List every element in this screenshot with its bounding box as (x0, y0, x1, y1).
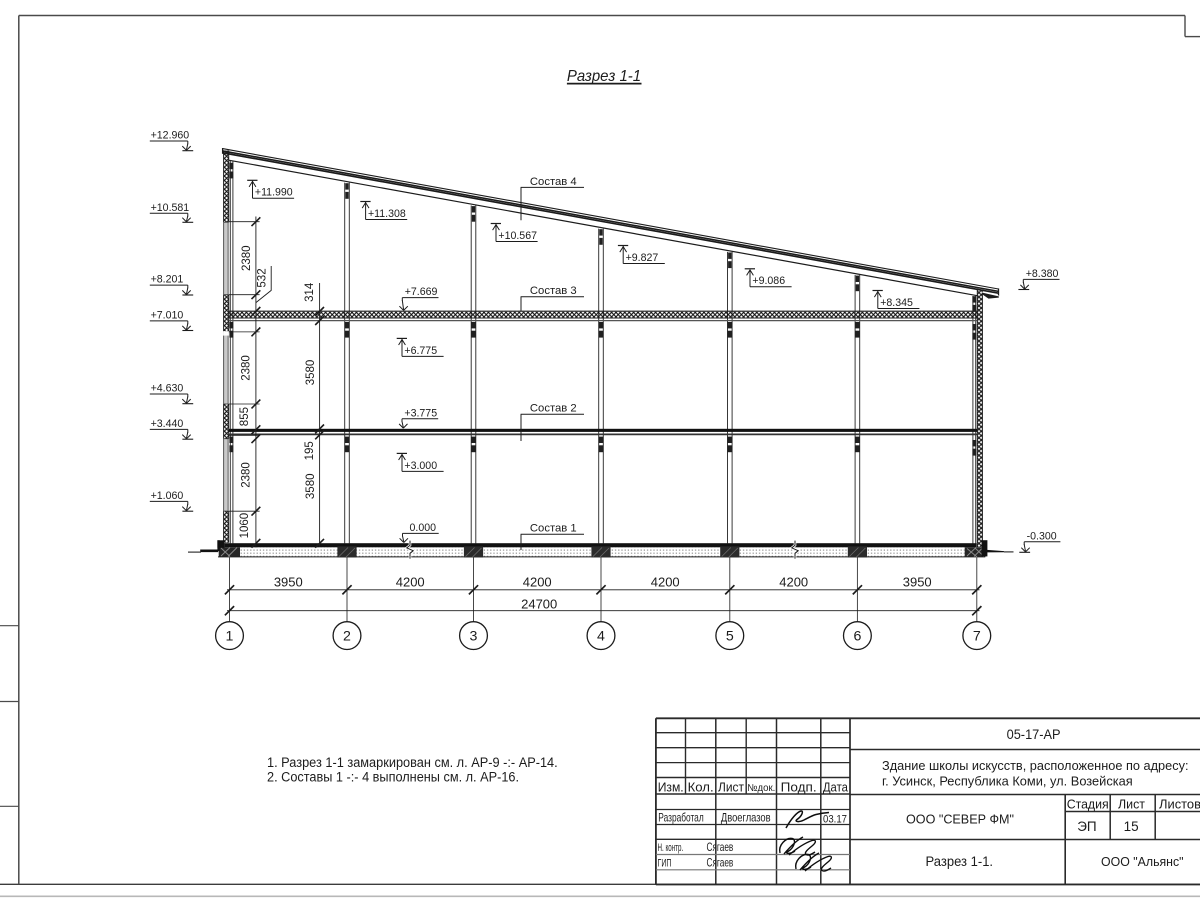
svg-text:4: 4 (597, 629, 605, 645)
svg-text:+3.440: +3.440 (151, 418, 184, 430)
svg-text:+8.380: +8.380 (1026, 268, 1059, 280)
svg-text:05-17-АР: 05-17-АР (1007, 726, 1061, 742)
svg-text:-0.300: -0.300 (1027, 530, 1057, 542)
svg-text:3: 3 (470, 629, 478, 645)
svg-text:1. Разрез 1-1 замаркирован см.: 1. Разрез 1-1 замаркирован см. л. АР-9 -… (267, 755, 558, 770)
svg-text:Дата: Дата (823, 780, 849, 795)
svg-text:ООО "СЕВЕР ФМ": ООО "СЕВЕР ФМ" (906, 812, 1014, 827)
svg-text:2380: 2380 (240, 355, 252, 381)
svg-text:Подп.: Подп. (781, 780, 817, 795)
svg-text:5: 5 (726, 629, 734, 645)
svg-text:Состав 4: Состав 4 (530, 176, 577, 188)
svg-text:4200: 4200 (779, 575, 808, 590)
svg-text:Лист: Лист (718, 780, 744, 795)
svg-text:4200: 4200 (396, 575, 425, 590)
svg-text:+3.000: +3.000 (404, 460, 437, 472)
svg-text:3580: 3580 (305, 360, 317, 386)
svg-text:+6.775: +6.775 (404, 345, 437, 357)
svg-text:Стадия: Стадия (1067, 797, 1109, 812)
svg-text:Состав 2: Состав 2 (530, 403, 577, 415)
svg-text:+7.669: +7.669 (405, 286, 438, 298)
svg-text:Разработал: Разработал (658, 811, 703, 825)
svg-text:314: 314 (304, 282, 316, 302)
svg-text:г. Усинск, Республика Коми, ул: г. Усинск, Республика Коми, ул. Возейска… (882, 773, 1133, 788)
svg-text:4200: 4200 (523, 575, 552, 590)
svg-text:+12.960: +12.960 (151, 130, 190, 142)
svg-text:Состав 1: Состав 1 (530, 523, 577, 535)
svg-text:1: 1 (226, 629, 234, 645)
svg-text:03.17: 03.17 (823, 813, 847, 825)
svg-text:+1.060: +1.060 (151, 490, 184, 502)
svg-text:3950: 3950 (274, 575, 303, 590)
svg-text:+11.308: +11.308 (368, 208, 406, 220)
svg-text:0.000: 0.000 (410, 522, 437, 534)
svg-text:ГИП: ГИП (658, 857, 672, 869)
svg-text:+9.086: +9.086 (752, 275, 785, 287)
svg-text:Листов: Листов (1159, 797, 1200, 812)
svg-text:24700: 24700 (521, 596, 557, 611)
svg-text:4200: 4200 (651, 575, 680, 590)
svg-text:855: 855 (239, 407, 251, 426)
svg-text:ООО "Альянс": ООО "Альянс" (1101, 854, 1184, 869)
svg-text:Состав 3: Состав 3 (530, 285, 577, 297)
svg-text:Разрез 1-1: Разрез 1-1 (567, 68, 641, 85)
svg-text:2. Составы 1 -:- 4 выполнены с: 2. Составы 1 -:- 4 выполнены см. л. АР-1… (267, 769, 519, 784)
svg-text:2380: 2380 (240, 462, 252, 488)
svg-text:2380: 2380 (241, 245, 253, 271)
svg-text:1060: 1060 (239, 513, 251, 539)
svg-text:3950: 3950 (903, 575, 932, 590)
svg-text:7: 7 (973, 629, 981, 645)
svg-text:+10.581: +10.581 (151, 202, 190, 214)
svg-text:Лист: Лист (1118, 797, 1145, 812)
svg-text:+9.827: +9.827 (626, 252, 659, 264)
svg-text:Здание школы искусств, располо: Здание школы искусств, расположенное по … (882, 758, 1189, 773)
svg-text:Сягаев: Сягаев (707, 855, 734, 869)
svg-text:ЭП: ЭП (1077, 819, 1096, 834)
svg-text:+4.630: +4.630 (151, 383, 184, 395)
svg-text:2: 2 (343, 629, 351, 645)
svg-text:+3.775: +3.775 (404, 407, 437, 419)
svg-text:532: 532 (257, 268, 269, 287)
svg-text:Н. контр.: Н. контр. (658, 842, 684, 854)
svg-text:№док.: №док. (747, 783, 775, 794)
svg-text:+8.201: +8.201 (151, 274, 184, 286)
svg-text:15: 15 (1124, 819, 1139, 834)
svg-text:+11.990: +11.990 (255, 187, 293, 199)
svg-text:Изм.: Изм. (658, 780, 684, 795)
svg-text:Разрез 1-1.: Разрез 1-1. (926, 854, 994, 869)
svg-text:Сягаев: Сягаев (707, 840, 734, 854)
svg-text:Двоеглазов: Двоеглазов (721, 811, 771, 825)
svg-text:+7.010: +7.010 (151, 310, 184, 322)
svg-text:3580: 3580 (305, 474, 317, 500)
svg-text:195: 195 (304, 441, 316, 460)
svg-text:Кол.: Кол. (688, 780, 714, 795)
svg-text:+8.345: +8.345 (880, 297, 913, 309)
svg-text:6: 6 (853, 629, 861, 645)
svg-text:+10.567: +10.567 (498, 230, 537, 242)
